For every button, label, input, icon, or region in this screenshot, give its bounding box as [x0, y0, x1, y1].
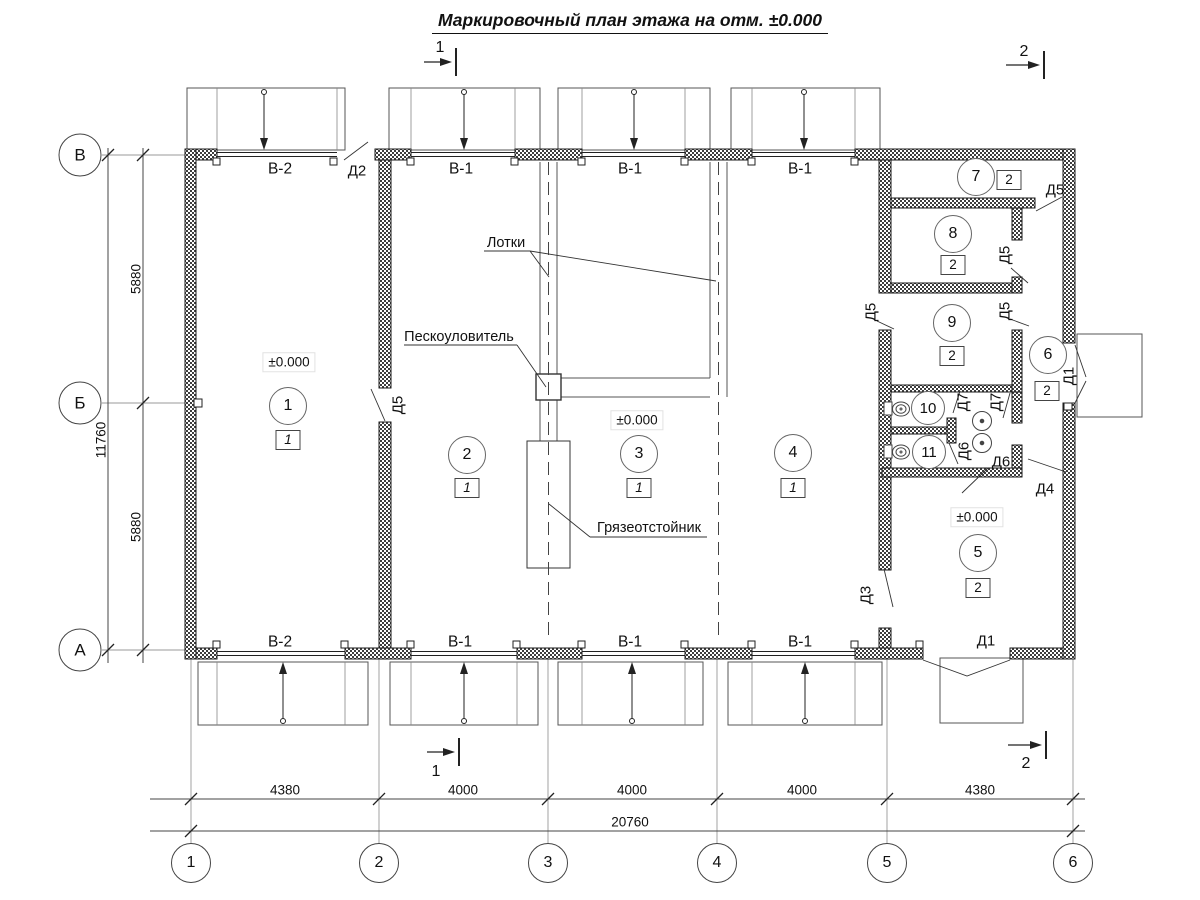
door-label: Д6	[992, 455, 1011, 470]
elevation-mark: ±0.000	[610, 410, 663, 430]
section-mark-label: 2	[1020, 44, 1029, 60]
grid-axis-circle: Б	[59, 382, 102, 425]
door-label: Д6	[957, 442, 972, 461]
door-label: Д7	[956, 393, 971, 412]
labels-layer: В-2В-1В-1В-1В-2В-1В-1В-1Д2Д5Д5Д5Д5Д5Д7Д7…	[0, 0, 1200, 900]
grid-axis-circle: 5	[867, 843, 907, 883]
dimension-value: 5880	[129, 264, 143, 294]
room-category-box: 1	[455, 478, 480, 498]
door-label: Д1	[1062, 367, 1077, 386]
dimension-total: 11760	[94, 422, 108, 459]
door-label: Д5	[998, 302, 1013, 321]
room-category-box: 2	[1035, 381, 1060, 401]
annotation-mud-settler: Грязеотстойник	[597, 521, 701, 536]
grid-axis-circle: 4	[697, 843, 737, 883]
section-mark-label: 2	[1022, 756, 1031, 772]
gate-label: В-2	[268, 634, 292, 650]
dimension-value: 4380	[965, 783, 995, 797]
section-mark-label: 1	[436, 40, 445, 56]
gate-label: В-1	[618, 161, 642, 177]
grid-axis-circle: А	[59, 629, 102, 672]
annotation-sand-trap: Пескоуловитель	[404, 330, 514, 345]
gate-label: В-1	[449, 161, 473, 177]
gate-label: В-1	[618, 634, 642, 650]
door-label: Д2	[348, 164, 367, 179]
door-label: Д5	[998, 246, 1013, 265]
door-label: Д5	[1046, 183, 1065, 198]
room-category-box: 2	[940, 346, 965, 366]
section-mark-label: 1	[432, 764, 441, 780]
door-label: Д4	[1036, 482, 1055, 497]
gate-label: В-1	[788, 634, 812, 650]
dimension-value: 5880	[129, 512, 143, 542]
floor-plan-canvas: Маркировочный план этажа на отм. ±0.000 …	[0, 0, 1200, 900]
door-label: Д7	[989, 393, 1004, 412]
grid-axis-circle: 1	[171, 843, 211, 883]
room-category-box: 1	[276, 430, 301, 450]
room-number-circle: 1	[269, 387, 307, 425]
gate-label: В-1	[788, 161, 812, 177]
room-category-box: 1	[627, 478, 652, 498]
door-label: Д1	[977, 634, 996, 649]
dimension-total: 20760	[611, 815, 649, 829]
room-number-circle: 11	[912, 435, 946, 469]
room-category-box: 2	[966, 578, 991, 598]
grid-axis-circle: В	[59, 134, 102, 177]
dimension-value: 4000	[617, 783, 647, 797]
door-label: Д3	[859, 586, 874, 605]
room-number-circle: 5	[959, 534, 997, 572]
grid-axis-circle: 6	[1053, 843, 1093, 883]
grid-axis-circle: 2	[359, 843, 399, 883]
room-number-circle: 2	[448, 436, 486, 474]
elevation-mark: ±0.000	[262, 352, 315, 372]
room-number-circle: 8	[934, 215, 972, 253]
room-category-box: 2	[997, 170, 1022, 190]
room-number-circle: 10	[911, 391, 945, 425]
room-number-circle: 9	[933, 304, 971, 342]
room-number-circle: 4	[774, 434, 812, 472]
room-number-circle: 3	[620, 435, 658, 473]
room-category-box: 2	[941, 255, 966, 275]
gate-label: В-1	[448, 634, 472, 650]
door-label: Д5	[391, 396, 406, 415]
room-number-circle: 6	[1029, 336, 1067, 374]
door-label: Д5	[864, 303, 879, 322]
elevation-mark: ±0.000	[950, 507, 1003, 527]
grid-axis-circle: 3	[528, 843, 568, 883]
gate-label: В-2	[268, 161, 292, 177]
dimension-value: 4380	[270, 783, 300, 797]
room-number-circle: 7	[957, 158, 995, 196]
room-category-box: 1	[781, 478, 806, 498]
dimension-value: 4000	[787, 783, 817, 797]
annotation-trays: Лотки	[487, 236, 525, 251]
dimension-value: 4000	[448, 783, 478, 797]
